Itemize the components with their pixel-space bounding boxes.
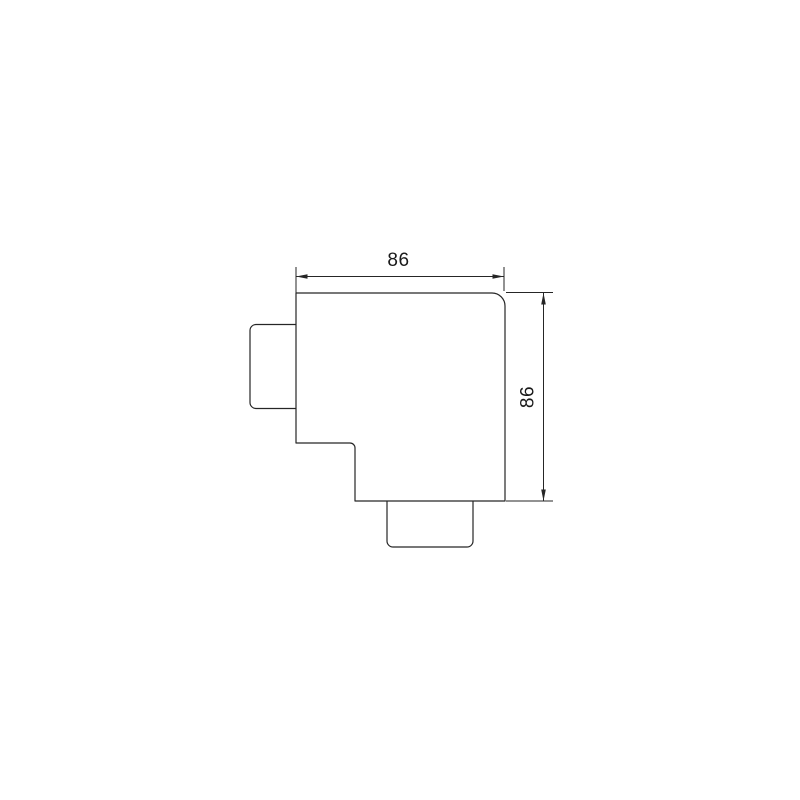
- width-dimension-label: 86: [387, 250, 409, 271]
- technical-drawing-canvas: 86 86: [0, 0, 800, 800]
- height-dimension-label: 86: [518, 386, 539, 408]
- bottom-connector-outline: [387, 501, 473, 547]
- height-arrow-top-icon: [541, 293, 546, 305]
- width-dimension: 86: [296, 250, 504, 293]
- width-arrow-right-icon: [493, 274, 505, 279]
- width-arrow-left-icon: [296, 274, 308, 279]
- flat-angle-drawing: 86 86: [0, 0, 800, 800]
- part-outline: [296, 293, 505, 501]
- height-dimension: 86: [506, 293, 553, 502]
- left-connector-outline: [250, 325, 296, 409]
- part-body: [250, 293, 505, 547]
- height-arrow-bottom-icon: [541, 490, 546, 502]
